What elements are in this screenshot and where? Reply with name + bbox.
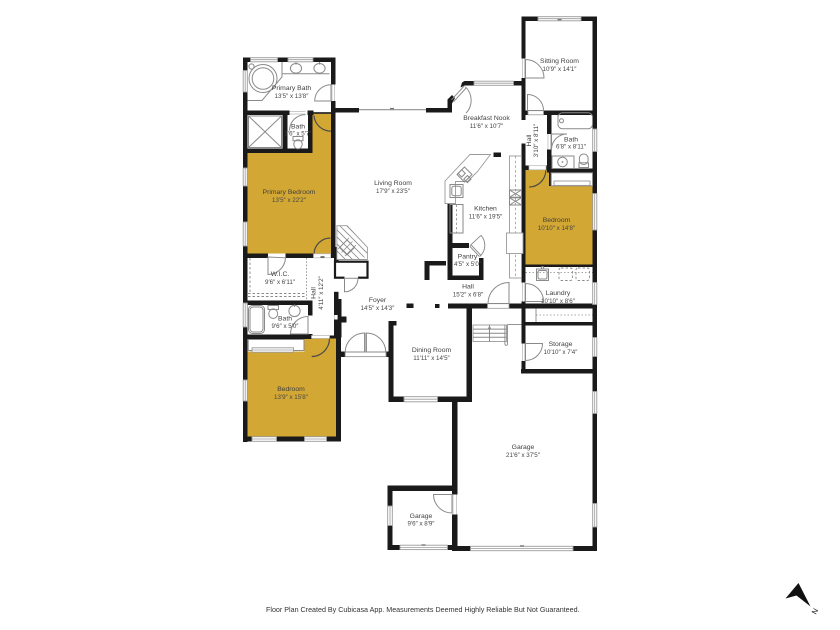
svg-text:Hall: Hall xyxy=(462,284,474,291)
svg-text:Bath: Bath xyxy=(291,124,305,131)
svg-text:10′9″ x 14′1″: 10′9″ x 14′1″ xyxy=(543,66,578,73)
svg-text:Foyer: Foyer xyxy=(369,297,387,304)
svg-text:13′5″ x 22′2″: 13′5″ x 22′2″ xyxy=(272,197,307,204)
svg-text:Floor Plan Created By Cubicasa: Floor Plan Created By Cubicasa App. Meas… xyxy=(266,606,580,614)
svg-text:Kitchen: Kitchen xyxy=(474,206,497,213)
svg-text:Bedroom: Bedroom xyxy=(277,386,305,393)
svg-text:11′6″ x 19′5″: 11′6″ x 19′5″ xyxy=(469,214,503,221)
svg-text:Hall: Hall xyxy=(526,134,533,146)
svg-text:Pantry: Pantry xyxy=(458,254,478,261)
svg-text:9′6″ x 8′9″: 9′6″ x 8′9″ xyxy=(408,521,436,528)
svg-text:Primary Bedroom: Primary Bedroom xyxy=(263,189,316,196)
svg-text:Bath: Bath xyxy=(278,316,292,323)
svg-text:Breakfast Nook: Breakfast Nook xyxy=(463,115,510,122)
svg-text:13′5″ x 13′8″: 13′5″ x 13′8″ xyxy=(275,93,310,100)
svg-text:Bath: Bath xyxy=(564,137,578,144)
svg-text:21′6″ x 37′5″: 21′6″ x 37′5″ xyxy=(506,452,541,459)
svg-text:15′2″ x 6′8″: 15′2″ x 6′8″ xyxy=(453,292,484,299)
svg-text:9′6″ x 5′0″: 9′6″ x 5′0″ xyxy=(272,323,300,330)
svg-text:Hall: Hall xyxy=(311,287,318,299)
svg-text:6′8″ x 8′11″: 6′8″ x 8′11″ xyxy=(556,144,587,151)
svg-text:10′10″ x 14′8″: 10′10″ x 14′8″ xyxy=(538,225,576,232)
svg-text:Garage: Garage xyxy=(410,513,433,520)
svg-text:Bedroom: Bedroom xyxy=(543,217,571,224)
svg-text:13′9″ x 15′8″: 13′9″ x 15′8″ xyxy=(274,394,309,401)
svg-text:3′6″ x 5′7″: 3′6″ x 5′7″ xyxy=(285,131,313,138)
svg-text:14′5″ x 14′3″: 14′5″ x 14′3″ xyxy=(361,305,396,312)
svg-text:Laundry: Laundry xyxy=(546,290,571,297)
svg-text:Primary Bath: Primary Bath xyxy=(272,85,312,92)
svg-text:Dining Room: Dining Room xyxy=(412,347,452,354)
svg-text:3′10″ x 8′11″: 3′10″ x 8′11″ xyxy=(533,123,540,157)
svg-text:10′10″ x 8′6″: 10′10″ x 8′6″ xyxy=(541,298,576,305)
svg-text:11′6″ x 10′7″: 11′6″ x 10′7″ xyxy=(470,123,504,130)
svg-text:17′9″ x 23′5″: 17′9″ x 23′5″ xyxy=(376,188,411,195)
svg-text:Garage: Garage xyxy=(512,444,535,451)
svg-text:10′10″ x 7′4″: 10′10″ x 7′4″ xyxy=(544,349,579,356)
svg-text:4′5″ x 5′0″: 4′5″ x 5′0″ xyxy=(454,261,482,268)
svg-text:Sitting Room: Sitting Room xyxy=(540,58,579,65)
svg-text:4′11″ x 12′2″: 4′11″ x 12′2″ xyxy=(318,275,325,309)
svg-text:11′11″ x 14′5″: 11′11″ x 14′5″ xyxy=(413,355,450,362)
svg-text:9′6″ x 6′11″: 9′6″ x 6′11″ xyxy=(265,279,296,286)
svg-text:Living Room: Living Room xyxy=(374,180,412,187)
svg-text:W.I.C.: W.I.C. xyxy=(271,271,290,278)
svg-text:Storage: Storage xyxy=(549,341,573,348)
